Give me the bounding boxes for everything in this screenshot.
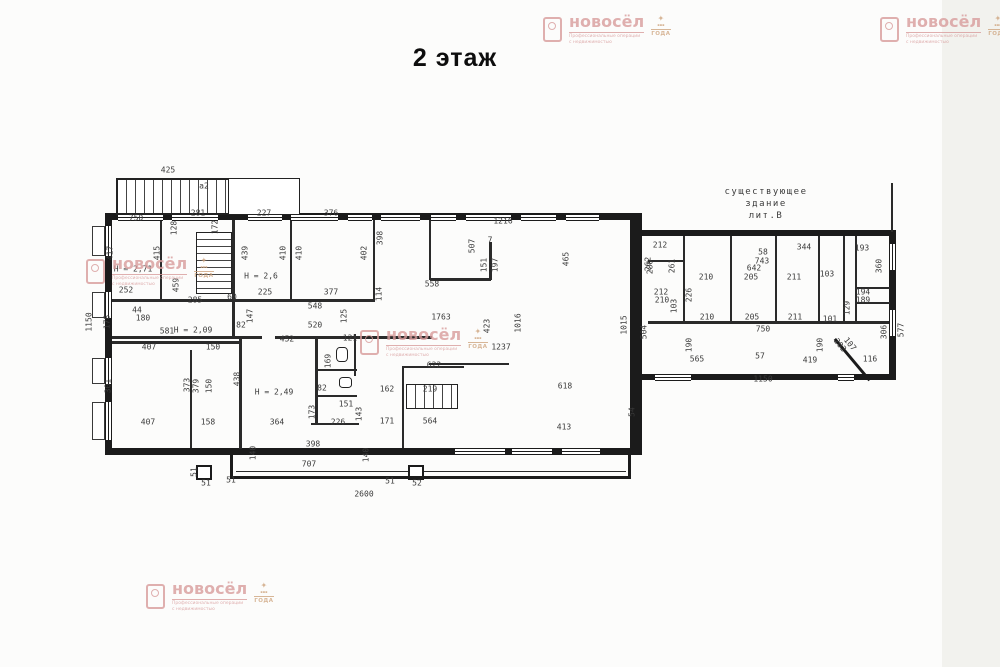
dimension-label: 465	[562, 252, 571, 266]
award-emblem: ✦▪▪▪ГОДА	[988, 15, 1000, 37]
plumbing-fixture-icon	[336, 347, 348, 362]
dimension-label: 301	[104, 379, 113, 393]
dimension-label: 410	[295, 246, 304, 260]
partition-wall	[232, 220, 235, 336]
dimension-label: 622	[427, 361, 441, 370]
dimension-label: 379	[192, 379, 201, 393]
dimension-label: 750	[129, 214, 143, 223]
dimension-label: 180	[136, 314, 150, 323]
partition-wall	[290, 220, 292, 300]
award-emblem: ✦▪▪▪ГОДА	[194, 257, 213, 279]
dimension-label: 364	[270, 418, 284, 427]
dimension-label: 60	[227, 293, 237, 302]
dimension-label: 407	[142, 343, 156, 352]
balcony	[230, 452, 631, 479]
dimension-label: 125	[340, 309, 349, 323]
novosel-logo-text: новосёлПрофессиональные операциис недвиж…	[172, 581, 247, 613]
dimension-label: а2	[199, 182, 209, 191]
dimension-label: 1016	[514, 313, 523, 332]
dimension-label: 129	[843, 301, 852, 315]
dimension-label: 439	[241, 246, 250, 260]
dimension-label: 425	[161, 166, 175, 175]
dimension-label: 189	[856, 296, 870, 305]
novosel-tagline: Профессиональные операциис недвижимостью	[906, 32, 981, 46]
novosel-logo-text: новосёлПрофессиональные операциис недвиж…	[386, 327, 461, 359]
note-line-1: существующее	[700, 186, 832, 198]
dimension-label: 205	[745, 313, 759, 322]
dimension-label: 618	[558, 382, 572, 391]
dimension-label: 7	[488, 236, 493, 245]
dimension-label: 1216	[493, 217, 512, 226]
dimension-label: 151	[480, 258, 489, 272]
dimension-label: 285	[188, 296, 202, 305]
novosel-logo-icon	[543, 17, 562, 42]
dimension-label: 212	[653, 241, 667, 250]
dimension-label: 504	[640, 325, 649, 339]
dimension-label: 642	[747, 264, 761, 273]
dimension-label: 82	[236, 321, 246, 330]
dimension-label: 158	[201, 418, 215, 427]
note-line-3: лит.В	[700, 210, 832, 222]
novosel-watermark: новосёлПрофессиональные операциис недвиж…	[86, 256, 214, 288]
dimension-label: 57	[755, 352, 765, 361]
dimension-label: 173	[308, 405, 317, 419]
dimension-label: 1237	[491, 343, 510, 352]
dimension-label: 210	[655, 296, 669, 305]
window	[655, 374, 691, 381]
dimension-label: 407	[141, 418, 155, 427]
dimension-label: 211	[787, 273, 801, 282]
dimension-label: 262	[644, 257, 653, 271]
dimension-label: 140	[362, 448, 371, 462]
plumbing-fixture-icon	[339, 377, 352, 388]
dimension-label: 548	[308, 302, 322, 311]
partition-wall	[730, 236, 732, 323]
partition-wall	[239, 339, 242, 449]
novosel-logo-icon	[880, 17, 899, 42]
dimension-label: 147	[246, 309, 255, 323]
dimension-label: 51	[385, 477, 395, 486]
dimension-label: 373	[183, 378, 192, 392]
dimension-label: 226	[685, 288, 694, 302]
novosel-logo-text: новосёлПрофессиональные операциис недвиж…	[112, 256, 187, 288]
novosel-brand-name: новосёл	[569, 14, 644, 30]
partition-wall	[315, 395, 357, 397]
dimension-label: 306	[880, 325, 889, 339]
dimension-label: 344	[797, 243, 811, 252]
window	[105, 402, 112, 440]
dimension-label: 178	[103, 315, 112, 329]
novosel-brand-name: новосёл	[906, 14, 981, 30]
window	[521, 214, 556, 221]
dimension-label: 121	[343, 334, 357, 343]
dimension-label: 438	[233, 372, 242, 386]
dimension-label: 1150	[753, 375, 772, 384]
window-sill	[92, 402, 105, 440]
dimension-label: Н = 2,09	[174, 326, 213, 335]
novosel-brand-name: новосёл	[112, 256, 187, 272]
dimension-label: 82	[317, 384, 327, 393]
dimension-label: 150	[206, 343, 220, 352]
window	[431, 214, 456, 221]
dimension-label: 413	[557, 423, 571, 432]
dimension-label: 227	[257, 209, 271, 218]
partition-wall	[818, 236, 820, 323]
novosel-logo-text: новосёлПрофессиональные операциис недвиж…	[906, 14, 981, 46]
novosel-tagline: Профессиональные операциис недвижимостью	[386, 345, 461, 359]
award-year-label: ГОДА	[254, 596, 273, 604]
dimension-label: 205	[744, 273, 758, 282]
dimension-label: 116	[863, 355, 877, 364]
dimension-label: 51	[201, 479, 211, 488]
dimension-label: 140	[249, 446, 258, 460]
existing-building-note: существующее здание лит.В	[700, 186, 832, 222]
dimension-label: 162	[380, 385, 394, 394]
award-emblem: ✦▪▪▪ГОДА	[651, 15, 670, 37]
dimension-label: 2600	[354, 490, 373, 499]
window	[838, 374, 854, 381]
dimension-label: 452	[280, 335, 294, 344]
note-line-2: здание	[700, 198, 832, 210]
dimension-label: 52	[412, 479, 422, 488]
scanned-floorplan-page: 2 этаж существующее здание лит.В 425а275…	[0, 0, 1000, 667]
dimension-label: 211	[788, 313, 802, 322]
dimension-label: Н = 2,49	[255, 388, 294, 397]
dimension-label: 1015	[620, 315, 629, 334]
dimension-label: 101	[823, 315, 837, 324]
novosel-logo-text: новосёлПрофессиональные операциис недвиж…	[569, 14, 644, 46]
partition-wall	[775, 236, 777, 323]
window	[889, 310, 896, 336]
window	[381, 214, 420, 221]
dimension-label: 143	[355, 407, 364, 421]
dimension-label: 565	[690, 355, 704, 364]
novosel-brand-name: новосёл	[172, 581, 247, 597]
award-year-label: ГОДА	[468, 342, 487, 350]
dimension-label: 151	[339, 400, 353, 409]
dimension-label: 128	[170, 221, 179, 235]
novosel-brand-name: новосёл	[386, 327, 461, 343]
window-sill	[92, 226, 105, 256]
dimension-label: 410	[279, 246, 288, 260]
dimension-label: 193	[855, 244, 869, 253]
award-year-label: ГОДА	[651, 29, 670, 37]
dimension-label: 51	[226, 476, 236, 485]
dimension-label: 281	[191, 209, 205, 218]
novosel-tagline: Профессиональные операциис недвижимостью	[569, 32, 644, 46]
novosel-logo-icon	[86, 259, 105, 284]
partition-wall	[429, 220, 431, 280]
dimension-label: 114	[375, 287, 384, 301]
dimension-label: 419	[803, 356, 817, 365]
novosel-watermark: новосёлПрофессиональные операциис недвиж…	[360, 327, 488, 359]
dimension-label: 51	[190, 467, 199, 477]
partition-wall	[315, 369, 357, 371]
dimension-label: 577	[897, 323, 906, 337]
award-year-label: ГОДА	[194, 271, 213, 279]
dimension-label: 707	[302, 460, 316, 469]
dimension-label: 581	[160, 327, 174, 336]
dimension-label: 376	[324, 209, 338, 218]
dimension-label: 150	[205, 379, 214, 393]
dimension-label: 564	[423, 417, 437, 426]
dimension-label: 210	[699, 273, 713, 282]
staircase	[117, 179, 229, 214]
dimension-label: 520	[308, 321, 322, 330]
dimension-label: 360	[875, 259, 884, 273]
dimension-label: 398	[306, 440, 320, 449]
dimension-label: 226	[331, 418, 345, 427]
dimension-label: 219	[423, 385, 437, 394]
dimension-label: 1150	[85, 312, 94, 331]
dimension-label: 558	[425, 280, 439, 289]
novosel-logo-icon	[146, 584, 165, 609]
window	[566, 214, 599, 221]
dimension-label: 54	[628, 407, 637, 417]
dimension-label: 1763	[431, 313, 450, 322]
novosel-tagline: Профессиональные операциис недвижимостью	[112, 274, 187, 288]
dimension-label: 103	[670, 299, 679, 313]
novosel-tagline: Профессиональные операциис недвижимостью	[172, 599, 247, 613]
dimension-label: 190	[685, 338, 694, 352]
dimension-label: 750	[756, 325, 770, 334]
dimension-label: 190	[816, 338, 825, 352]
dimension-label: 103	[820, 270, 834, 279]
novosel-watermark: новосёлПрофессиональные операциис недвиж…	[146, 581, 274, 613]
award-emblem: ✦▪▪▪ГОДА	[254, 582, 273, 604]
partition-wall	[190, 350, 192, 448]
wall	[640, 230, 896, 236]
partition-wall	[683, 236, 685, 323]
dimension-label: 225	[258, 288, 272, 297]
novosel-logo-icon	[360, 330, 379, 355]
floor-plan-canvas: существующее здание лит.В 425а2750281128…	[0, 0, 1000, 667]
dimension-label: 402	[360, 246, 369, 260]
award-emblem: ✦▪▪▪ГОДА	[468, 328, 487, 350]
dimension-label: 377	[324, 288, 338, 297]
dimension-label: 58	[758, 248, 768, 257]
novosel-watermark: новосёлПрофессиональные операциис недвиж…	[880, 14, 1000, 46]
dimension-label: 197	[491, 258, 500, 272]
dimension-label: 171	[380, 417, 394, 426]
novosel-watermark: новосёлПрофессиональные операциис недвиж…	[543, 14, 671, 46]
dimension-label: 169	[324, 354, 333, 368]
dimension-label: 210	[700, 313, 714, 322]
dimension-label: 507	[468, 239, 477, 253]
dimension-label: 398	[376, 231, 385, 245]
dimension-label: 172	[211, 220, 220, 234]
dimension-label: 261	[668, 259, 677, 273]
window	[889, 244, 896, 270]
partition-wall	[891, 183, 893, 232]
window	[348, 214, 372, 221]
partition-wall	[402, 366, 404, 448]
award-year-label: ГОДА	[988, 29, 1000, 37]
dimension-label: Н = 2,6	[244, 272, 278, 281]
partition-wall	[112, 299, 375, 302]
